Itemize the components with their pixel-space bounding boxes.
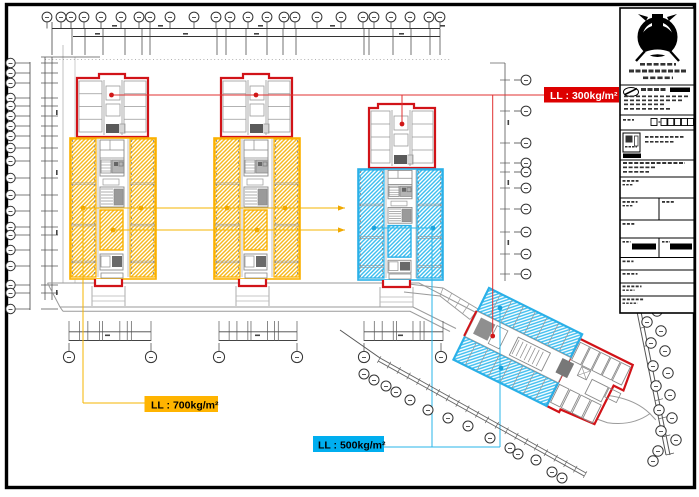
- svg-text:LL : 700kg/m²: LL : 700kg/m²: [151, 400, 219, 412]
- svg-text:LL : 300kg/m²: LL : 300kg/m²: [550, 90, 618, 102]
- svg-text:LL : 500kg/m²: LL : 500kg/m²: [318, 440, 386, 452]
